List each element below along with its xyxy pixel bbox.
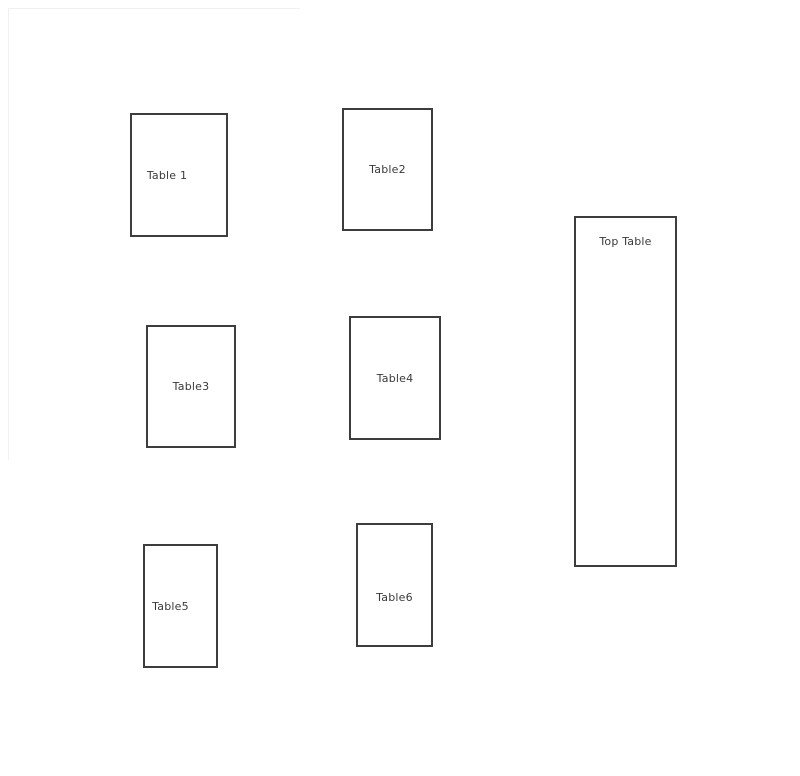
table-3-label: Table3 bbox=[173, 380, 210, 393]
table-5-label: Table5 bbox=[152, 600, 189, 613]
table-2-label: Table2 bbox=[369, 163, 406, 176]
table-3-box: Table3 bbox=[146, 325, 236, 448]
faint-page-border-left bbox=[8, 8, 9, 460]
table-2-box: Table2 bbox=[342, 108, 433, 231]
table-4-label: Table4 bbox=[377, 372, 414, 385]
top-table-box: Top Table bbox=[574, 216, 677, 567]
table-5-box: Table5 bbox=[143, 544, 218, 668]
top-table-label: Top Table bbox=[599, 235, 651, 248]
table-1-label: Table 1 bbox=[147, 169, 187, 182]
table-4-box: Table4 bbox=[349, 316, 441, 440]
table-6-label: Table6 bbox=[376, 591, 413, 604]
faint-page-border-top bbox=[8, 8, 300, 9]
seating-plan-canvas: Table 1 Table2 Table3 Table4 Table5 Tabl… bbox=[0, 0, 800, 776]
table-1-box: Table 1 bbox=[130, 113, 228, 237]
table-6-box: Table6 bbox=[356, 523, 433, 647]
